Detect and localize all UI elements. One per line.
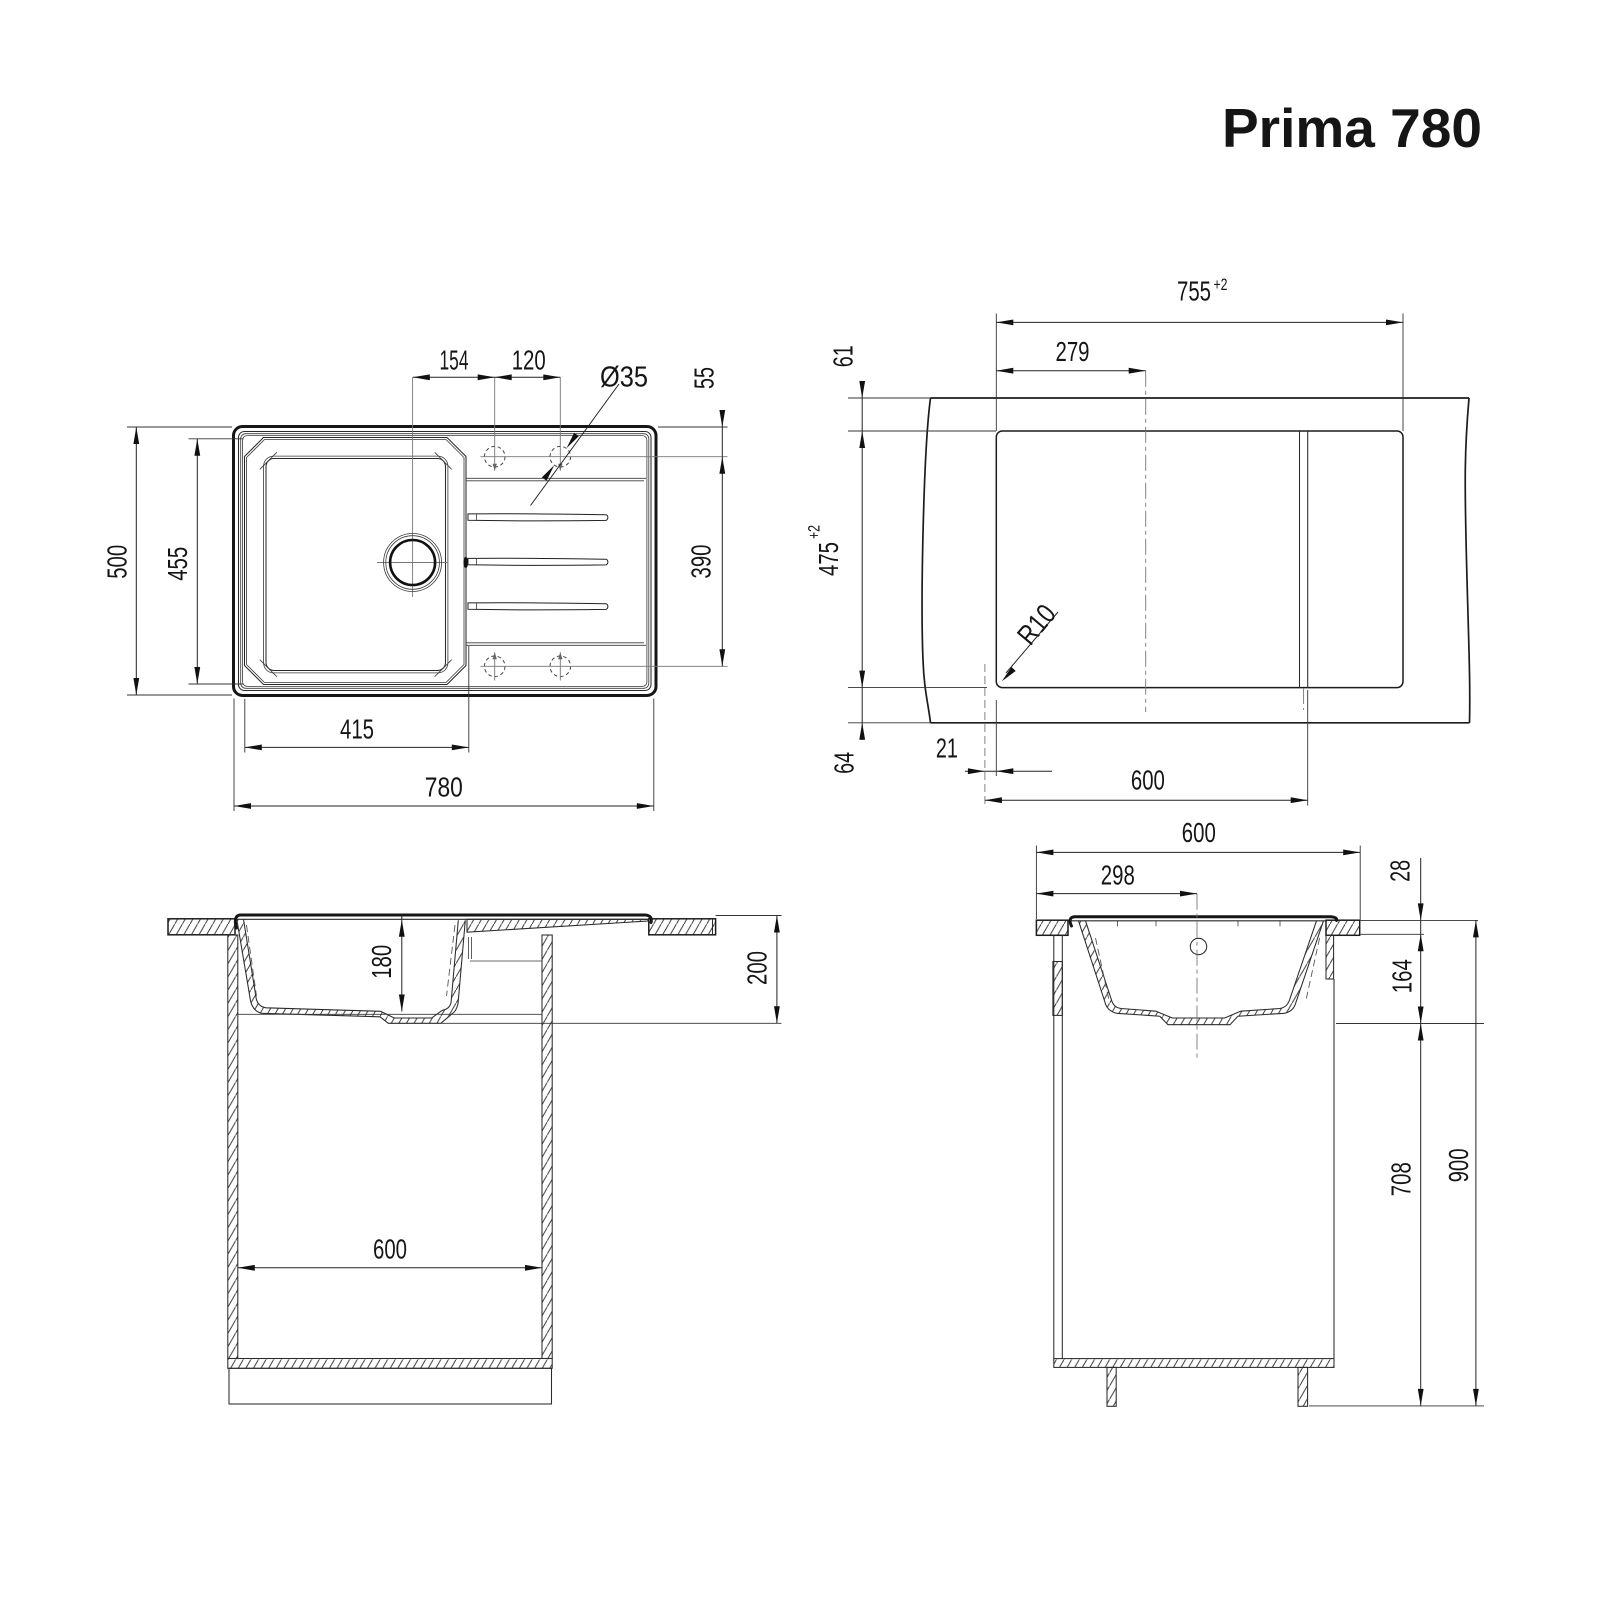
svg-text:164: 164 (1387, 959, 1418, 993)
svg-text:+2: +2 (805, 525, 824, 539)
svg-text:279: 279 (1056, 336, 1090, 367)
svg-text:180: 180 (366, 945, 397, 979)
svg-text:415: 415 (340, 714, 374, 745)
svg-text:21: 21 (936, 733, 958, 764)
svg-text:708: 708 (1386, 1162, 1417, 1196)
svg-text:Ø35: Ø35 (600, 362, 648, 394)
svg-text:755: 755 (1177, 276, 1211, 307)
svg-text:55: 55 (688, 367, 719, 389)
svg-text:390: 390 (685, 545, 716, 579)
svg-text:200: 200 (742, 951, 773, 985)
svg-text:61: 61 (828, 345, 859, 367)
svg-text:780: 780 (425, 772, 463, 803)
svg-text:298: 298 (1101, 860, 1135, 891)
svg-text:900: 900 (1443, 1148, 1474, 1182)
svg-text:120: 120 (512, 345, 546, 376)
svg-text:64: 64 (829, 752, 860, 774)
svg-text:600: 600 (1131, 765, 1165, 796)
svg-text:Prima 780: Prima 780 (1222, 97, 1482, 159)
svg-text:600: 600 (373, 1234, 407, 1265)
svg-text:600: 600 (1182, 817, 1216, 848)
svg-text:475: 475 (813, 542, 844, 576)
svg-text:28: 28 (1385, 860, 1416, 882)
svg-text:455: 455 (162, 547, 193, 581)
svg-text:500: 500 (102, 545, 133, 579)
svg-text:+2: +2 (1214, 275, 1228, 294)
svg-text:154: 154 (440, 345, 469, 376)
